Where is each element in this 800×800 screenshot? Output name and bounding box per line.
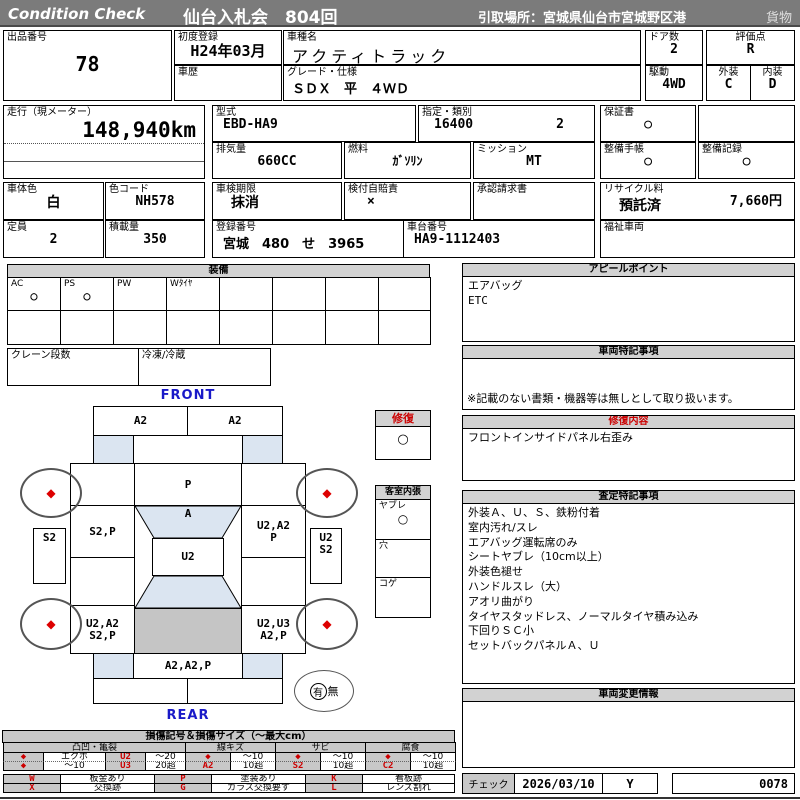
repair-flag-title: 修復 [376,411,430,427]
field-freezer: 冷凍/冷蔵 [138,348,271,386]
field-doors: ドア数 2 [645,30,703,65]
legend-code: G [154,783,212,793]
windshield-label: A [134,507,242,520]
equipment-cell-empty [60,310,114,345]
appeal-line: エアバッグ [468,279,789,294]
assessment-line: 外装色褪せ [468,565,789,580]
legend-cell: A2 [185,761,231,771]
field-approval-request: 承認請求書 [473,182,595,220]
field-score: 評価点 R [706,30,795,65]
field-recycle-fee: リサイクル料 預託済 7,660円 [600,182,795,220]
assessment-line: アオリ曲がり [468,595,789,610]
equipment-cell-empty [7,310,61,345]
side-right-mid [241,557,306,606]
field-displacement: 排気量 660CC [212,142,342,179]
field-blank [698,105,795,142]
wheel-front-right: ◆ [296,468,358,518]
pickup-location: 引取場所：宮城県仙台市宮城野区港 [478,7,686,26]
legend-cell: 10超 [320,761,366,771]
damage-diagram: FRONT A2 A2 P S2,P U2,A2 P A U2 U2,A2 S2… [0,388,460,734]
vehicle-notes-header: 車両特記事項 [462,345,795,359]
vehicle-notes-panel: ※記載のない書類・機器等は無しとして取り扱います。 [462,358,795,410]
field-fuel: 燃料 ｶﾞｿﾘﾝ [344,142,471,179]
equipment-cell-empty [219,310,273,345]
equipment-header: 装備 [7,264,430,278]
check-date: 2026/03/10 [515,774,603,793]
category-label: 貨物 [766,7,792,26]
field-model-name: 車種名 アクティトラック [283,30,641,65]
assessment-line: 外装Ａ、Ｕ、Ｓ、鉄粉付着 [468,506,789,521]
equipment-cell-ps: PS○ [60,277,114,311]
equipment-cell-empty [166,310,220,345]
equipment-cell-empty [325,310,379,345]
appeal-points-panel: エアバッグ ETC [462,276,795,342]
field-insurance: 検付自賠責 × [344,182,471,220]
damage-diamond-icon: ◆ [46,617,55,631]
spare-tire-indicator: 有 無 [294,670,354,712]
mileage-value: 148,940km [4,118,204,142]
rear-label: REAR [153,708,223,723]
field-welfare-vehicle: 福祉車両 [600,220,795,258]
field-body-color: 車体色 白 [3,182,104,220]
sheet-number: 0078 [673,774,794,791]
vehicle-change-panel [462,701,795,768]
repair-flag-box: 修復 ○ [375,410,431,460]
auction-title: 仙台入札会 804回 [183,3,338,28]
equipment-cell-ac: AC○ [7,277,61,311]
title-bar: Condition Check 仙台入札会 804回 引取場所：宮城県仙台市宮城… [0,0,800,27]
repair-line: フロントインサイドパネル右歪み [468,431,789,446]
legend-code: X [3,783,61,793]
legend-cell: ◆ [3,761,44,771]
field-interior-grade: 内装 D [750,65,795,101]
assessment-line: タイヤスタッドレス、ノーマルタイヤ積み込み [468,610,789,625]
field-drive: 駆動 4WD [645,65,703,101]
front-corner-left [93,435,134,464]
cabin-box-title: 客室内張 [376,486,430,500]
field-history: 車歴 [174,65,282,101]
appeal-points-header: アピールポイント [462,263,795,277]
field-maintenance-record: 整備記録 ○ [698,142,795,179]
assessment-notes-panel: 外装Ａ、Ｕ、Ｓ、鉄粉付着 室内汚れ/スレ エアバッグ運転席のみ シートヤブレ（1… [462,503,795,684]
equipment-cell-empty [113,310,167,345]
wheel-rear-right: ◆ [296,598,358,650]
field-warranty-book: 保証書 ○ [600,105,696,142]
side-left-mid [70,557,135,606]
legend-code-desc: 交換跡 [60,783,155,793]
legend-cell: 10超 [410,761,456,771]
wheel-rear-left: ◆ [20,598,82,650]
cabin-item-tear: ヤブレ ○ [376,500,430,540]
equipment-cell-empty [378,277,431,311]
field-transmission: ミッション MT [473,142,595,179]
damage-legend: 損傷記号＆損傷サイズ（～最大cm） 凸凹・亀裂 線キズ サビ 腐食 ◆ エクボ … [3,730,457,793]
cargo-bed [134,608,242,654]
legend-code: L [305,783,363,793]
assessment-notes-header: 査定特記事項 [462,490,795,504]
damage-diamond-icon: ◆ [322,617,331,631]
legend-cell: S2 [275,761,321,771]
door-left: S2,P [70,505,135,558]
field-chassis-number: 車台番号 HA9-1112403 [403,220,595,258]
repair-details-header: 修復内容 [462,415,795,429]
legend-code-desc: レンズ割れ [362,783,455,793]
wheel-front-left: ◆ [20,468,82,518]
sheet-number-box: 0078 [672,773,795,794]
door-right: U2,A2 P [241,505,306,558]
cabin-item-hole: 穴 [376,540,430,578]
cabin-item-burn: コゲ [376,578,430,617]
field-capacity: 定員 2 [3,220,104,258]
assessment-line: 室内汚れ/スレ [468,521,789,536]
tailgate-panel: A2,A2,P [133,653,243,679]
front-bumper-left: A2 [93,406,188,436]
field-registration-number: 登録番号 宮城 480 せ 3965 [212,220,404,258]
spare-no: 無 [328,683,339,699]
damage-diamond-icon: ◆ [322,486,331,500]
equipment-cell-empty [378,310,431,345]
legend-code-desc: ガラス交換要す [211,783,306,793]
check-row: チェック 2026/03/10 Y [462,773,658,794]
front-bumper-right: A2 [187,406,283,436]
equipment-cell-empty [272,310,326,345]
bottom-rule [0,797,800,799]
hood-panel: P [134,463,242,506]
mirror-left: S2 [33,528,66,584]
damage-diamond-icon: ◆ [46,486,55,500]
front-label: FRONT [153,388,223,403]
rear-corner-left [93,653,134,679]
field-grade: グレード・仕様 ＳＤＸ 平 ４ＷＤ [283,65,641,101]
check-mark: Y [603,774,657,793]
rear-window-shape [134,575,242,609]
equipment-cell-pw: PW [113,277,167,311]
equipment-cell-empty [219,277,273,311]
front-corner-right [242,435,283,464]
check-label: チェック [463,774,515,793]
brand-logo: Condition Check [8,5,145,23]
field-model-code: 型式 EBD-HA9 [212,105,416,142]
notes-footer: ※記載のない書類・機器等は無しとして取り扱います。 [467,392,739,407]
vehicle-change-header: 車両変更情報 [462,688,795,702]
field-lot-number: 出品番号 78 [3,30,172,101]
assessment-line: セットバックパネルＡ、Ｕ [468,639,789,654]
divider [4,161,204,162]
field-exterior-grade: 外装 C [706,65,751,101]
equipment-cell-wtire: Wﾀｲﾔ [166,277,220,311]
field-first-registration: 初度登録 H24年03月 [174,30,282,65]
field-mileage: 走行（現メーター） 148,940km [3,105,205,179]
field-class-number: 指定・類別 16400 2 [418,105,595,142]
field-maintenance-book: 整備手帳 ○ [600,142,696,179]
assessment-line: エアバッグ運転席のみ [468,536,789,551]
field-load-capacity: 積載量 350 [105,220,205,258]
divider [4,143,204,144]
cabin-interior-box: 客室内張 ヤブレ ○ 穴 コゲ [375,485,431,618]
legend-cell: U3 [105,761,146,771]
rear-bumper-left [93,678,188,704]
field-color-code: 色コード NH578 [105,182,205,220]
assessment-line: シートヤブレ（10cm以上） [468,550,789,565]
repair-details-panel: フロントインサイドパネル右歪み [462,428,795,481]
equipment-cell-empty [272,277,326,311]
rear-bumper-right [187,678,283,704]
mirror-right: U2 S2 [310,528,342,584]
rear-corner-right [242,653,283,679]
legend-cell: 20超 [145,761,186,771]
legend-cell: C2 [365,761,411,771]
roof-panel: U2 [152,538,224,576]
field-inspection-expiry: 車検期限 抹消 [212,182,342,220]
appeal-line: ETC [468,294,789,309]
assessment-line: ハンドルスレ（大） [468,580,789,595]
spare-yes-circled: 有 [310,683,327,700]
field-crane-steps: クレーン段数 [7,348,139,386]
lot-number-value: 78 [4,53,171,76]
legend-cell: ～10 [43,761,106,771]
assessment-line: 下回りＳＣ小 [468,624,789,639]
repair-flag-mark: ○ [376,427,430,447]
legend-cell: 10超 [230,761,276,771]
equipment-cell-empty [325,277,379,311]
